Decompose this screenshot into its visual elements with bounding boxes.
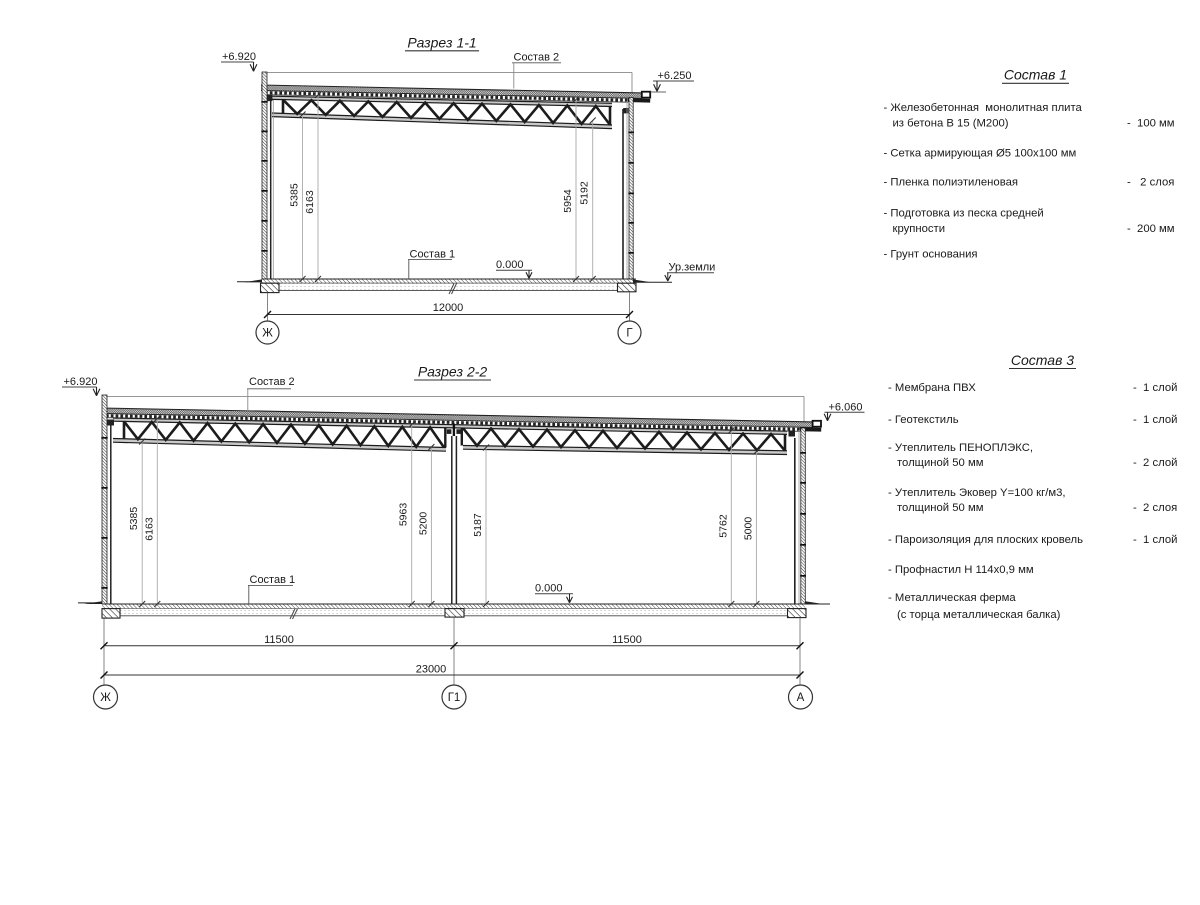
svg-text:- 1 слой: - 1 слой: [1133, 534, 1177, 546]
svg-text:Состав 2: Состав 2: [514, 52, 560, 64]
svg-text:+6.920: +6.920: [64, 376, 98, 388]
svg-text:- Подготовка из песка средней: - Подготовка из песка средней: [884, 208, 1044, 220]
svg-text:Состав 3: Состав 3: [1011, 352, 1074, 368]
svg-text:А: А: [797, 692, 805, 704]
svg-text:5954: 5954: [562, 189, 574, 213]
svg-text:Разрез 1-1: Разрез 1-1: [407, 35, 476, 51]
svg-text:из бетона В 15 (М200): из бетона В 15 (М200): [893, 117, 1009, 129]
svg-text:6163: 6163: [304, 190, 316, 214]
svg-text:5385: 5385: [128, 507, 140, 531]
svg-text:- 1 слой: - 1 слой: [1133, 382, 1177, 394]
svg-text:5000: 5000: [742, 517, 754, 541]
svg-text:Ур.земли: Ур.земли: [669, 262, 716, 274]
svg-text:Разрез 2-2: Разрез 2-2: [418, 364, 488, 380]
svg-text:Состав 1: Состав 1: [1004, 67, 1067, 83]
svg-text:- Профнастил Н 114х0,9 мм: - Профнастил Н 114х0,9 мм: [888, 564, 1034, 576]
svg-text:- 200 мм: - 200 мм: [1127, 223, 1175, 235]
svg-text:- 100 мм: - 100 мм: [1127, 117, 1175, 129]
svg-text:5385: 5385: [289, 183, 301, 207]
svg-text:толщиной 50 мм: толщиной 50 мм: [897, 502, 984, 514]
svg-text:Г1: Г1: [448, 692, 461, 704]
svg-text:+6.250: +6.250: [658, 70, 692, 82]
svg-text:5963: 5963: [398, 503, 410, 527]
svg-text:+6.920: +6.920: [222, 51, 256, 63]
svg-text:Ж: Ж: [262, 328, 273, 340]
svg-text:+6.060: +6.060: [829, 401, 863, 413]
svg-text:Состав 2: Состав 2: [249, 376, 295, 388]
svg-text:5192: 5192: [579, 181, 591, 205]
svg-text:5762: 5762: [717, 514, 729, 538]
svg-text:Ж: Ж: [100, 692, 111, 704]
svg-text:23000: 23000: [416, 664, 447, 676]
svg-text:0.000: 0.000: [496, 259, 524, 271]
svg-text:11500: 11500: [612, 634, 642, 646]
svg-text:- 2 слоя: - 2 слоя: [1133, 502, 1177, 514]
svg-text:Г: Г: [626, 328, 633, 340]
svg-text:- Мембрана ПВХ: - Мембрана ПВХ: [888, 382, 976, 394]
svg-text:- 2 слой: - 2 слой: [1133, 457, 1177, 469]
svg-text:0.000: 0.000: [535, 583, 563, 595]
svg-text:Состав 1: Состав 1: [250, 574, 296, 586]
svg-text:- Пленка полиэтиленовая: - Пленка полиэтиленовая: [884, 176, 1018, 188]
svg-text:- 2 слоя: - 2 слоя: [1127, 176, 1174, 188]
svg-text:- Сетка армирующая Ø5 100х100: - Сетка армирующая Ø5 100х100 мм: [884, 148, 1077, 160]
svg-text:- Пароизоляция для плоских кро: - Пароизоляция для плоских кровель: [888, 534, 1083, 546]
svg-text:- Утеплитель ПЕНОПЛЭКС,: - Утеплитель ПЕНОПЛЭКС,: [888, 442, 1033, 454]
svg-text:(с торца металлическая балка): (с торца металлическая балка): [897, 609, 1061, 621]
svg-text:толщиной 50 мм: толщиной 50 мм: [897, 457, 984, 469]
svg-text:5187: 5187: [472, 513, 484, 537]
svg-text:- Геотекстиль: - Геотекстиль: [888, 414, 959, 426]
svg-text:11500: 11500: [264, 634, 294, 646]
svg-text:- Грунт основания: - Грунт основания: [884, 249, 978, 261]
svg-text:6163: 6163: [143, 517, 155, 541]
svg-text:12000: 12000: [433, 302, 464, 314]
svg-text:- Железобетонная монолитная п: - Железобетонная монолитная плита: [884, 102, 1083, 114]
svg-text:- 1 слой: - 1 слой: [1133, 414, 1177, 426]
svg-text:Состав 1: Состав 1: [410, 249, 456, 261]
svg-text:5200: 5200: [417, 512, 429, 536]
svg-text:- Металлическая ферма: - Металлическая ферма: [888, 592, 1016, 604]
svg-text:крупности: крупности: [893, 223, 946, 235]
svg-text:- Утеплитель Эковер Y=100 кг/м: - Утеплитель Эковер Y=100 кг/м3,: [888, 487, 1066, 499]
